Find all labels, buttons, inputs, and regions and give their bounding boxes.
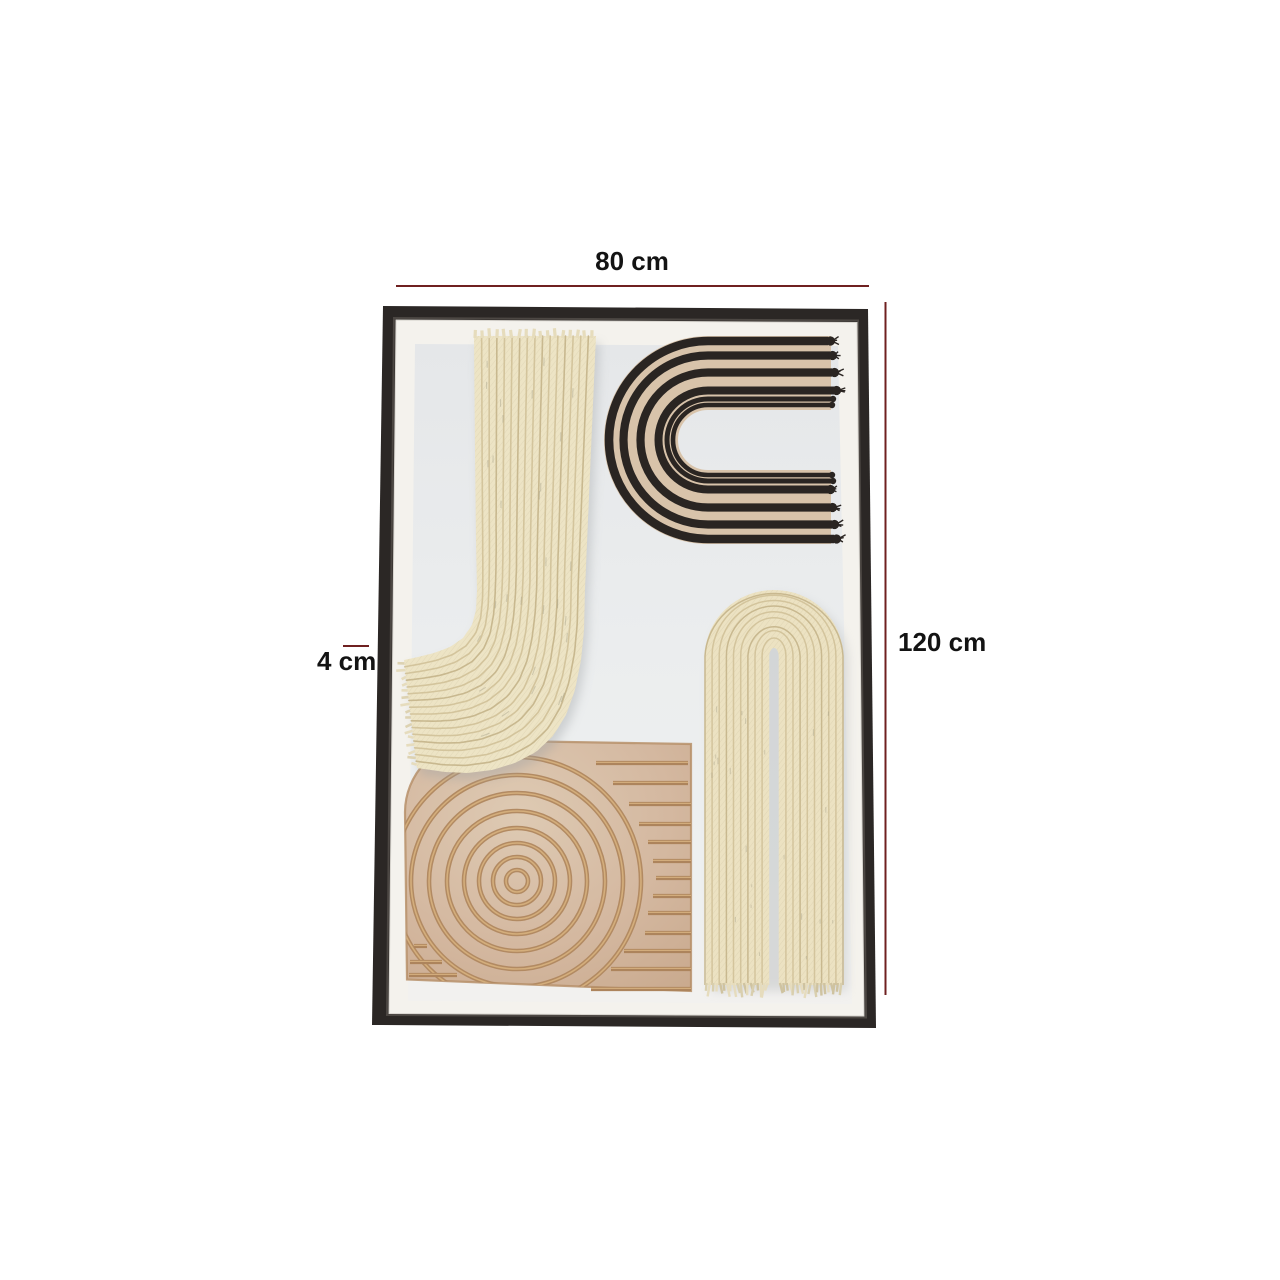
- svg-text:120 cm: 120 cm: [898, 627, 986, 657]
- svg-text:80 cm: 80 cm: [595, 246, 669, 276]
- svg-text:4 cm: 4 cm: [317, 646, 376, 676]
